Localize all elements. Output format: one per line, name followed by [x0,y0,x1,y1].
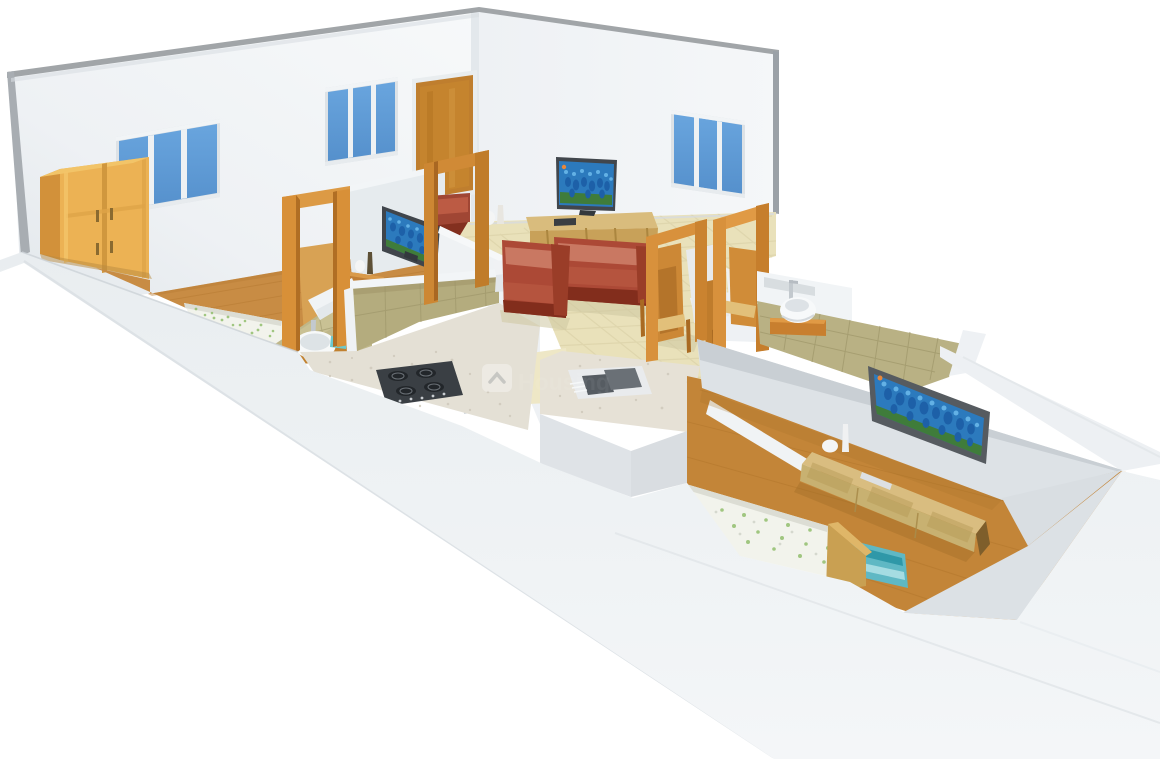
svg-text:Housing: Housing [518,369,610,395]
